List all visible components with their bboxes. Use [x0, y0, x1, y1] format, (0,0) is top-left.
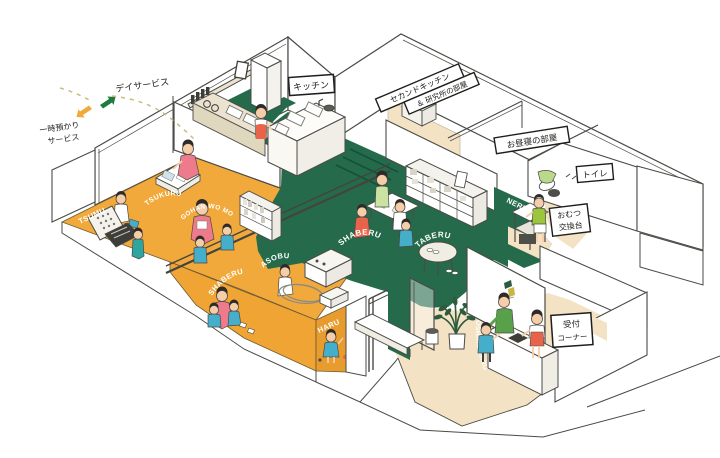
svg-text:サービス: サービス — [47, 133, 80, 146]
svg-text:受付: 受付 — [563, 318, 581, 329]
svg-text:デイサービス: デイサービス — [115, 76, 170, 94]
